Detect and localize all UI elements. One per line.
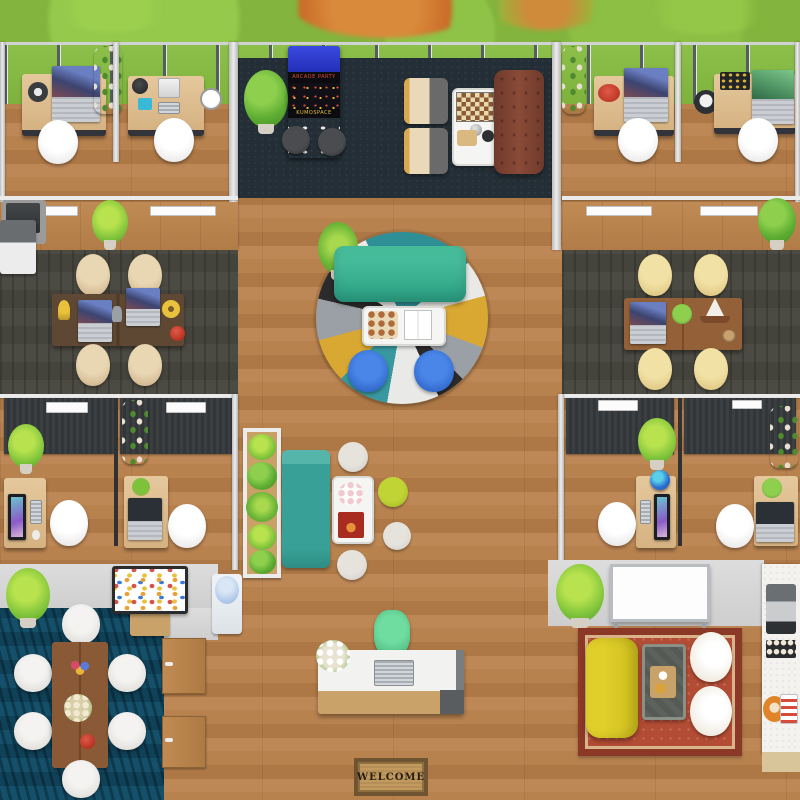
lounge-armchair-top[interactable] xyxy=(404,78,448,124)
sticky-note-display-board[interactable] xyxy=(112,566,188,614)
mouse xyxy=(32,530,40,540)
meeting-chair[interactable] xyxy=(108,712,146,750)
arcade-game-screen xyxy=(288,83,340,109)
planter-plant xyxy=(247,462,277,490)
whiteboard-easel[interactable] xyxy=(610,564,710,622)
conference-chair[interactable] xyxy=(76,254,110,296)
pouf[interactable] xyxy=(338,442,368,472)
potted-plant xyxy=(758,198,796,244)
conference-laptop xyxy=(78,300,112,342)
door-handle xyxy=(165,738,173,742)
arcade-screen-top xyxy=(288,46,340,72)
wall xyxy=(552,42,561,250)
potted-plant xyxy=(244,70,288,128)
wall-whiteboard[interactable] xyxy=(46,402,88,413)
snack-shelf xyxy=(770,406,798,468)
office8-laptop xyxy=(756,502,794,542)
office5-monitor xyxy=(8,494,26,540)
conference-chair-yellow[interactable] xyxy=(638,254,672,296)
coffee-tray xyxy=(650,666,676,698)
teal-sofa[interactable] xyxy=(334,246,466,302)
trophy xyxy=(58,300,70,320)
arcade-brand-label: KUMOSPACE xyxy=(288,109,340,118)
office7-chair[interactable] xyxy=(598,502,636,546)
teal-daybed[interactable] xyxy=(282,450,330,568)
display-stand-table xyxy=(130,612,170,636)
water-bottle xyxy=(215,576,239,604)
conference-laptop xyxy=(126,288,160,326)
meeting-chair[interactable] xyxy=(14,654,52,692)
meeting-chair[interactable] xyxy=(108,654,146,692)
conference-laptop xyxy=(630,302,666,344)
red-bowl xyxy=(598,84,620,102)
conference-chair-yellow[interactable] xyxy=(638,348,672,390)
desk-lamp xyxy=(132,78,148,94)
red-apple xyxy=(170,326,185,341)
open-magazine xyxy=(404,310,432,340)
floor-clock xyxy=(200,88,222,110)
conference-chair[interactable] xyxy=(128,344,162,386)
potted-plant xyxy=(92,200,128,244)
arcade-stool-left[interactable] xyxy=(282,126,310,154)
office-floor-plan: ARCADE PARTY KUMOSPACE xyxy=(0,0,800,800)
office2-chair[interactable] xyxy=(154,118,194,162)
office5-chair[interactable] xyxy=(50,500,88,546)
snack-tray xyxy=(457,130,477,146)
wall-whiteboard[interactable] xyxy=(150,206,216,216)
blue-swivel-chair[interactable] xyxy=(414,350,454,392)
succulent-plant xyxy=(762,478,782,498)
model-sailboat-sail xyxy=(706,298,724,316)
candy-jar xyxy=(68,658,92,676)
blue-swivel-chair[interactable] xyxy=(348,350,388,392)
meeting-room-door[interactable] xyxy=(162,716,206,768)
snack-shelf xyxy=(562,46,586,114)
lounge-armchair-bottom[interactable] xyxy=(404,128,448,174)
meeting-room-door[interactable] xyxy=(162,638,206,694)
food-platter xyxy=(368,311,398,339)
kitchen-counter-wood-end xyxy=(762,752,800,772)
copier-machine xyxy=(0,220,36,274)
flower-vase xyxy=(338,482,364,506)
door-handle xyxy=(165,662,173,666)
leather-sofa[interactable] xyxy=(494,70,544,174)
reception-desk-corner xyxy=(440,690,464,714)
welcome-mat: WELCOME xyxy=(354,758,428,796)
chess-board[interactable] xyxy=(456,92,494,122)
wall-whiteboard[interactable] xyxy=(700,206,758,216)
headphones xyxy=(28,82,48,102)
meeting-chair[interactable] xyxy=(62,760,100,798)
office6-chair[interactable] xyxy=(168,504,206,548)
office1-laptop xyxy=(52,66,100,122)
coffee-machine[interactable] xyxy=(766,584,796,634)
wall xyxy=(675,42,681,162)
potted-plant xyxy=(6,568,50,622)
office3-chair[interactable] xyxy=(618,118,658,162)
frying-pan xyxy=(482,130,494,142)
donut-box xyxy=(780,694,798,724)
wall-whiteboard[interactable] xyxy=(586,206,652,216)
yellow-sofa[interactable] xyxy=(586,638,638,738)
office5-keyboard xyxy=(30,500,42,524)
snack-shelf xyxy=(122,400,148,464)
potted-plant xyxy=(638,418,676,464)
desktop-printer xyxy=(158,78,180,98)
wall xyxy=(678,398,682,546)
reception-keyboard xyxy=(374,660,414,686)
red-apple xyxy=(80,734,95,749)
meeting-chair[interactable] xyxy=(14,712,52,750)
pouf-lime[interactable] xyxy=(378,477,408,507)
desk-statue xyxy=(112,306,122,322)
arcade-marquee: ARCADE PARTY xyxy=(288,72,340,83)
office4-chair[interactable] xyxy=(738,118,778,162)
succulent-plant xyxy=(672,304,692,324)
reception-flowers xyxy=(316,640,350,672)
office3-laptop xyxy=(624,68,668,122)
office8-chair[interactable] xyxy=(716,504,754,548)
meeting-chair[interactable] xyxy=(62,604,100,644)
pouf[interactable] xyxy=(337,550,367,580)
flower-bouquet xyxy=(64,694,92,722)
office4-laptop xyxy=(752,70,794,124)
potted-plant xyxy=(8,424,44,468)
potted-plant xyxy=(556,564,604,622)
conference-chair-yellow[interactable] xyxy=(694,348,728,390)
wall xyxy=(558,394,564,570)
conference-chair-yellow[interactable] xyxy=(694,254,728,296)
wall xyxy=(113,42,119,162)
blue-notepad xyxy=(138,98,152,110)
bonsai-plant xyxy=(132,478,150,496)
cream-swivel-chair[interactable] xyxy=(690,632,732,682)
office2-keyboard xyxy=(158,102,180,114)
wall xyxy=(114,398,118,546)
desk-organizer xyxy=(720,72,750,90)
small-dish xyxy=(722,330,736,342)
planter-plant xyxy=(248,434,276,460)
espresso-cups xyxy=(766,640,796,658)
wall xyxy=(232,394,238,570)
wall-whiteboard[interactable] xyxy=(732,400,762,409)
planter-plant xyxy=(246,492,278,522)
cream-swivel-chair[interactable] xyxy=(690,686,732,736)
office1-chair[interactable] xyxy=(38,120,78,164)
desk-globe xyxy=(650,470,670,490)
conference-chair[interactable] xyxy=(76,344,110,386)
wall xyxy=(562,196,800,200)
planter-plant xyxy=(249,550,276,574)
arcade-stool-right[interactable] xyxy=(318,128,346,156)
wall-whiteboard[interactable] xyxy=(166,402,206,413)
welcome-mat-text: WELCOME xyxy=(357,772,425,783)
office7-monitor xyxy=(654,494,670,540)
model-sailboat-hull xyxy=(700,316,730,323)
office6-laptop xyxy=(128,498,162,540)
red-book xyxy=(338,512,364,538)
office7-keyboard xyxy=(640,500,651,524)
sunflower-vase xyxy=(162,300,180,318)
pouf[interactable] xyxy=(383,522,411,550)
planter-plant xyxy=(248,524,276,550)
wall-whiteboard[interactable] xyxy=(598,400,638,411)
